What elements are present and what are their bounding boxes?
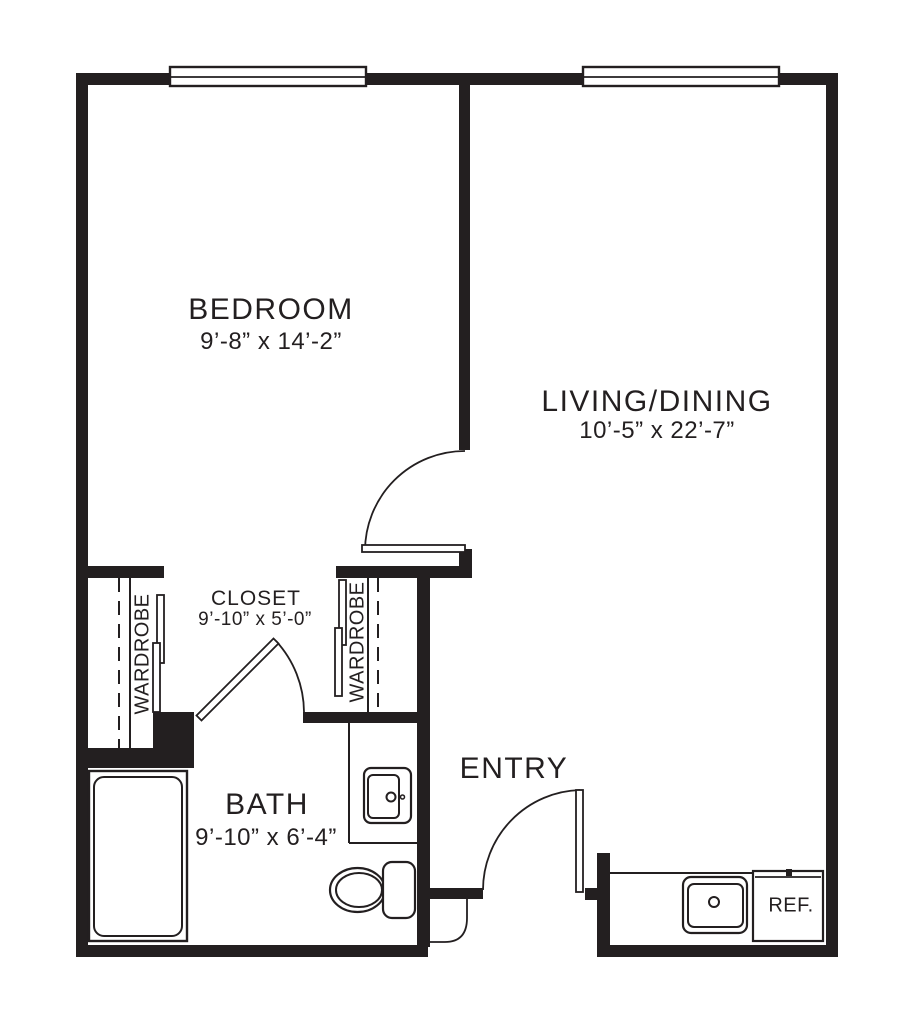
closet-door (197, 639, 305, 721)
living-dining-dimensions: 10’-5” x 22’-7” (579, 417, 735, 445)
wall-closet-top-right (336, 566, 472, 578)
entry-label: ENTRY (460, 752, 569, 786)
bath-dimensions: 9’-10” x 6’-4” (195, 824, 337, 852)
wall-exterior-left (76, 73, 88, 957)
wardrobe-right-slide-panel-2 (335, 628, 342, 696)
bedroom-door-leaf (362, 545, 465, 552)
wall-closet-bottom-right (303, 712, 417, 723)
wardrobe-right-label: WARDROBE (347, 581, 370, 702)
floor-plan-drawing (0, 0, 900, 1020)
wall-closet-top-left (76, 566, 164, 578)
toilet-tank (383, 862, 415, 918)
bedroom-dimensions: 9’-8” x 14’-2” (200, 328, 342, 356)
wall-exterior-bottom-right (597, 945, 838, 957)
bedroom-door-swing-arc (365, 451, 465, 551)
kitchen-sink (683, 877, 747, 933)
walls (76, 73, 838, 957)
bath-door-swing (430, 898, 467, 942)
living-dining-label: LIVING/DINING (541, 385, 772, 419)
closet-dimensions: 9’-10” x 5’-0” (198, 609, 312, 631)
wall-wardrobe-floor (76, 748, 194, 768)
closet-label: CLOSET (211, 587, 301, 611)
bedroom-label: BEDROOM (188, 293, 354, 327)
wardrobe-left-label: WARDROBE (132, 593, 155, 714)
wall-kitchen-stub (597, 853, 610, 957)
shower (89, 771, 187, 941)
vanity (349, 723, 417, 843)
bathroom-sink (364, 768, 411, 823)
wall-exterior-bottom-left (76, 945, 428, 957)
entry-door (483, 790, 583, 892)
wall-bedroom-living (459, 85, 470, 450)
bath-label: BATH (225, 788, 309, 822)
wall-entry-left-stub (417, 888, 483, 899)
floor-plan: BEDROOM 9’-8” x 14’-2” LIVING/DINING 10’… (0, 0, 900, 1020)
closet-door-swing-arc (276, 641, 304, 712)
bedroom-door (362, 451, 465, 552)
wall-exterior-right (826, 73, 838, 957)
closet-door-leaf (197, 639, 279, 721)
entry-door-swing-arc (483, 790, 580, 890)
entry-door-leaf (576, 790, 583, 892)
refrigerator-label: REF. (768, 895, 813, 918)
window-living (583, 67, 779, 86)
window-bedroom (170, 67, 366, 86)
toilet (330, 862, 415, 918)
